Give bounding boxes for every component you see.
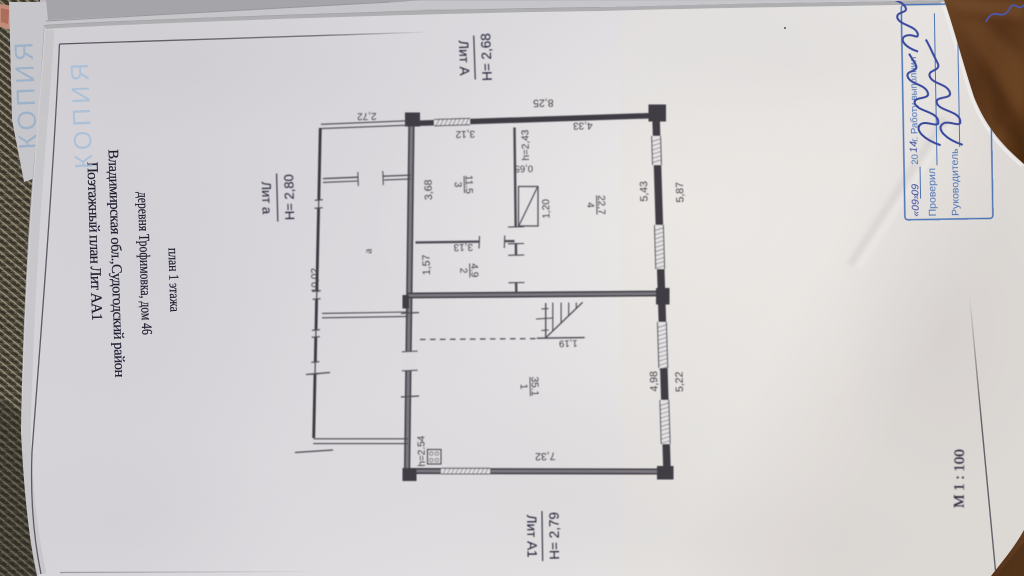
svg-text:8,25: 8,25 [533, 97, 554, 109]
svg-text:2: 2 [457, 268, 468, 274]
svg-text:22,7: 22,7 [595, 195, 606, 215]
svg-text:Н= 2,68: Н= 2,68 [478, 33, 495, 81]
svg-text:35.1: 35.1 [528, 377, 539, 397]
svg-text:h=2.54: h=2.54 [416, 435, 428, 467]
svg-text:1: 1 [518, 384, 529, 390]
svg-text:09: 09 [909, 184, 921, 196]
svg-text:3: 3 [452, 182, 463, 188]
svg-text:1,57: 1,57 [421, 254, 433, 275]
svg-text:4: 4 [584, 202, 595, 208]
svg-text:1,19: 1,19 [559, 337, 578, 348]
svg-text:а: а [362, 248, 374, 253]
svg-text:4.9: 4.9 [468, 263, 479, 278]
svg-text:3,12: 3,12 [455, 128, 475, 139]
svg-text:3,13: 3,13 [453, 241, 473, 252]
svg-text:Проверил: Проверил [926, 168, 939, 217]
svg-text:1,20: 1,20 [541, 199, 552, 219]
svg-text:20: 20 [910, 154, 921, 165]
svg-text:4,98: 4,98 [648, 371, 660, 392]
svg-text:2,72: 2,72 [357, 110, 377, 121]
svg-text:10,02: 10,02 [310, 267, 322, 293]
svg-text:Н= 2,80: Н= 2,80 [281, 174, 297, 220]
svg-text:7,32: 7,32 [535, 450, 556, 462]
svg-text:5,87: 5,87 [674, 182, 686, 203]
svg-text:4,33: 4,33 [573, 120, 593, 131]
svg-text:КОПИЯ: КОПИЯ [66, 58, 99, 169]
svg-text:5,22: 5,22 [674, 371, 686, 392]
svg-text:3,68: 3,68 [423, 179, 435, 200]
svg-text:Лит а: Лит а [259, 181, 275, 215]
svg-text:Руководитель: Руководитель [949, 148, 962, 216]
svg-text:М 1 : 100: М 1 : 100 [952, 449, 969, 508]
svg-text:11.5: 11.5 [463, 175, 474, 194]
svg-text:Н= 2,79: Н= 2,79 [546, 512, 562, 560]
svg-text:Лит А: Лит А [456, 40, 472, 76]
svg-text:h=2,43: h=2,43 [520, 129, 532, 161]
svg-text:Лит А1: Лит А1 [524, 515, 540, 558]
svg-text:0,65: 0,65 [514, 163, 533, 174]
svg-text:план 1 этажа: план 1 этажа [165, 248, 182, 313]
svg-text:5,43: 5,43 [638, 181, 650, 202]
